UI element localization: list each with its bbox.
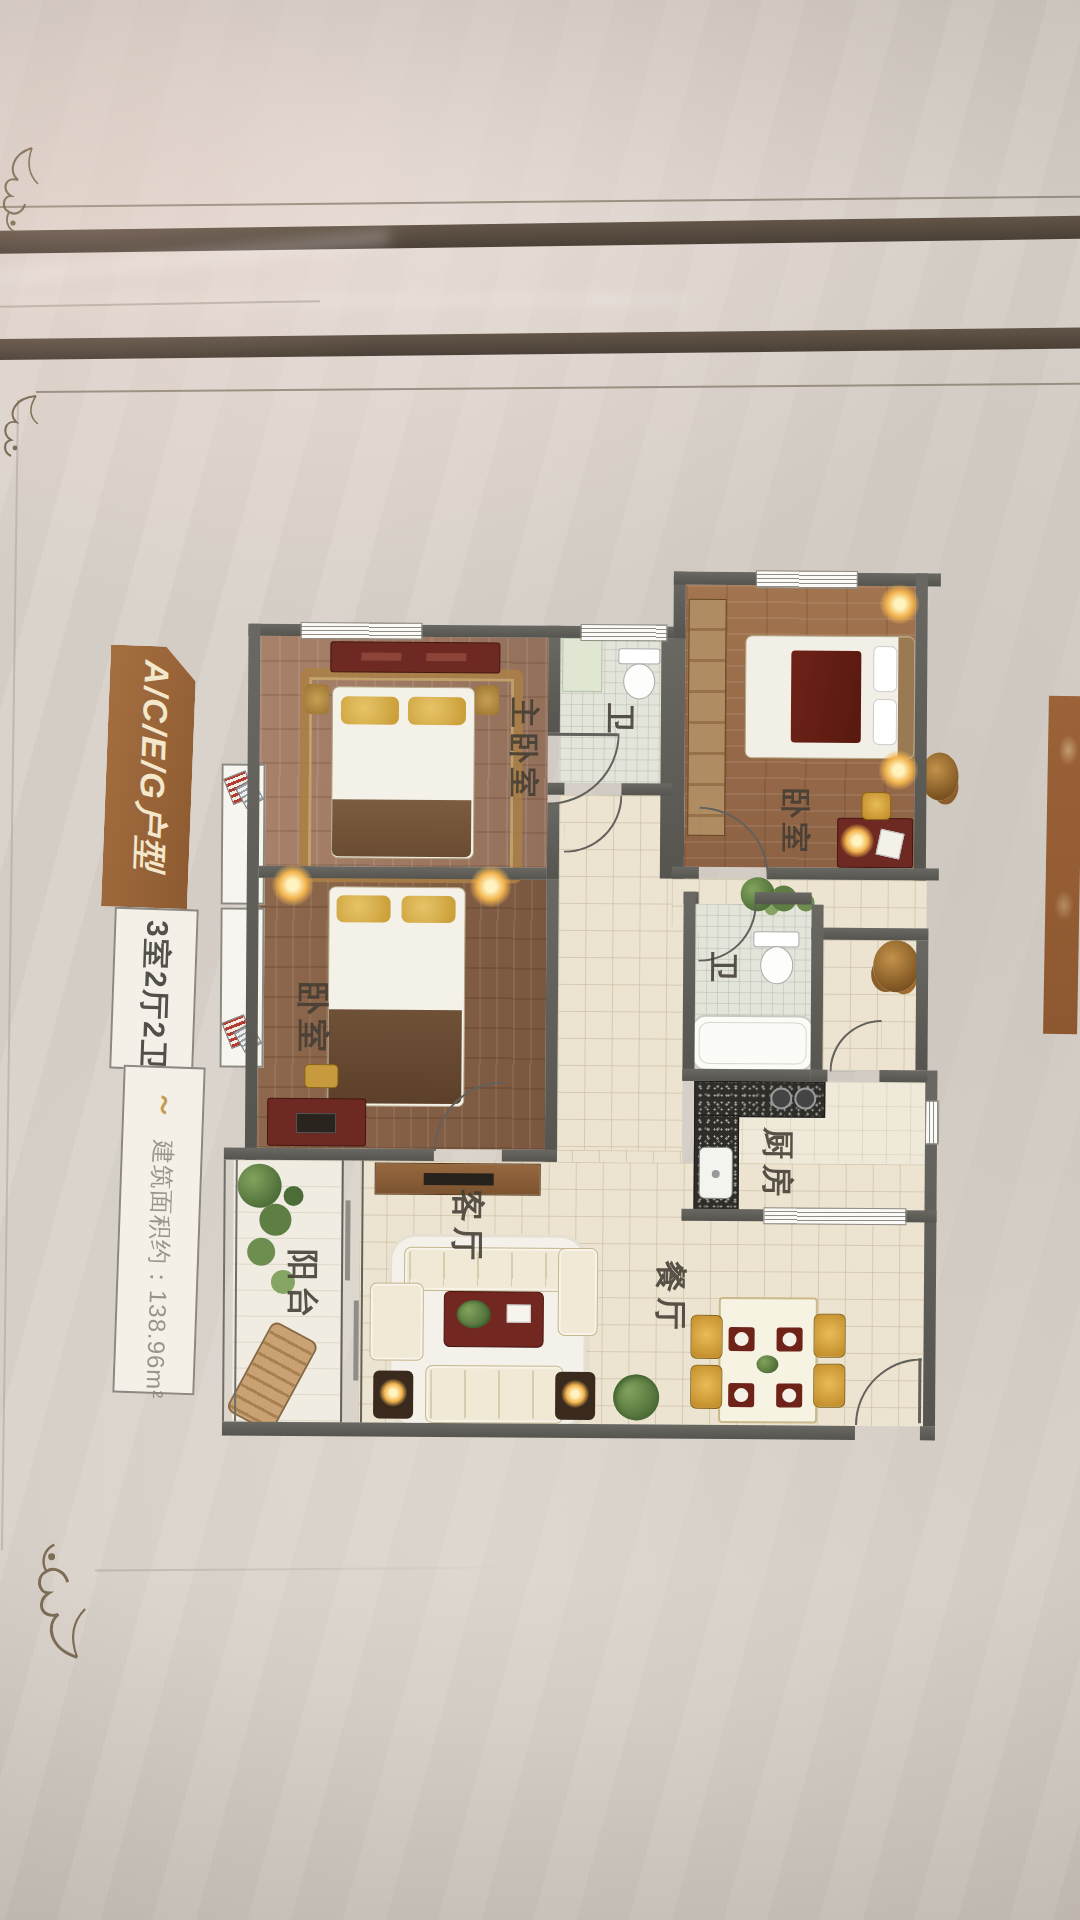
desk-paper (876, 829, 905, 860)
pillow (401, 896, 455, 923)
toilet-bowl (623, 663, 655, 699)
dining-chair (690, 1315, 722, 1359)
room-label-bedroom-right: 卧室 (780, 787, 810, 857)
wall (502, 1149, 557, 1161)
master-bed (331, 686, 475, 859)
toilet-tank (618, 648, 660, 664)
armchair (369, 1283, 424, 1361)
wall (660, 639, 686, 879)
dining-chair (813, 1314, 845, 1358)
bedroom-right-bed (745, 635, 916, 759)
tv (296, 1113, 336, 1133)
plate (782, 1388, 796, 1402)
frame-line-main-thin (36, 383, 1080, 393)
master-nightstand (475, 685, 499, 715)
dining-plant (613, 1374, 659, 1420)
area-label: 建筑面积约：138.96m² (142, 1140, 175, 1400)
wall (672, 867, 699, 879)
corner-flourish-icon (28, 1542, 94, 1660)
corner-flourish-icon (0, 146, 40, 234)
window (925, 1100, 939, 1144)
placemat (729, 1327, 755, 1351)
wall (682, 892, 695, 1081)
window (300, 622, 422, 640)
desk-lamp-glow (840, 824, 874, 858)
placemat (728, 1383, 754, 1407)
plate (783, 1332, 797, 1346)
frame-band-main-top (0, 327, 1080, 360)
wall (920, 1426, 935, 1440)
placemat (776, 1383, 802, 1407)
layout-label: 3室2厅2卫 (137, 920, 172, 1073)
table-tray (507, 1304, 531, 1322)
adjacent-poster-banner-fragment (1043, 696, 1080, 1035)
pillow (873, 646, 897, 692)
wall (755, 892, 812, 904)
sofa (425, 1365, 563, 1424)
dresser-drawer (426, 653, 466, 661)
hall-living-join-floor (545, 1150, 682, 1163)
corner-flourish-icon (0, 392, 38, 462)
bathtub (691, 1015, 813, 1072)
speaker-lamp-glow (379, 1379, 407, 1407)
sliding-door (340, 1160, 364, 1422)
pillow (341, 696, 399, 724)
stove-burner (794, 1087, 816, 1109)
sink-drain (712, 1170, 720, 1178)
wall (810, 1070, 827, 1082)
bedside-lamp-glow (272, 864, 314, 906)
shower-mat (562, 638, 602, 692)
bedroom-left-bed (327, 886, 466, 1107)
bathtub-inner (699, 1022, 807, 1065)
speaker-lamp-glow (561, 1380, 589, 1408)
plate (735, 1332, 749, 1346)
window (580, 624, 667, 642)
floor-speaker (373, 1371, 413, 1419)
pillow (336, 895, 390, 922)
room-label-kitchen: 厨房 (762, 1127, 795, 1201)
bedside-lamp-glow (470, 865, 512, 907)
headboard (898, 637, 915, 758)
plate (734, 1388, 748, 1402)
tv (424, 1173, 494, 1185)
pillow (408, 697, 466, 725)
gold-swoosh-icon: ～ (150, 1090, 181, 1126)
armchair (558, 1248, 599, 1336)
wardrobe (687, 599, 727, 836)
wall (222, 1421, 855, 1439)
table-flowers (457, 1300, 491, 1328)
wall (811, 928, 928, 941)
room-label-bath-top: 卫 (605, 703, 635, 738)
frame-band-upper (0, 216, 1080, 254)
door-leaf (918, 1358, 921, 1423)
room-label-balcony: 阳台 (287, 1249, 320, 1323)
wall (682, 1069, 810, 1082)
wall (904, 1210, 936, 1222)
wall (915, 940, 928, 1070)
pillow (873, 699, 897, 745)
toilet (618, 648, 658, 700)
sofa-cushions (430, 1370, 558, 1419)
bed-end-bench (304, 1064, 338, 1088)
room-label-living-room: 客厅 (451, 1189, 485, 1265)
wall (810, 905, 823, 1082)
photo-crease-highlight-2 (0, 296, 690, 304)
wall (879, 1070, 927, 1082)
unit-type-banner: A/C/E/G户型 (101, 644, 197, 909)
dresser-drawer (361, 652, 401, 660)
wall (914, 573, 928, 880)
layout-box: 3室2厅2卫 (109, 907, 199, 1072)
area-box: ～ 建筑面积约：138.96m² (112, 1065, 205, 1396)
toilet (753, 931, 797, 983)
room-label-bath-middle: 卫 (708, 952, 738, 987)
frame-line-upper-thin (0, 196, 1080, 208)
stove-burner (770, 1087, 792, 1109)
balcony-railing (222, 1159, 238, 1421)
coffee-table (444, 1291, 544, 1348)
dining-chair (690, 1365, 722, 1409)
photo-background: A/C/E/G户型 3室2厅2卫 ～ 建筑面积约：138.96m² (0, 0, 1080, 1920)
window (763, 1207, 906, 1225)
sofa-cushions (409, 1252, 571, 1287)
wall (681, 1209, 763, 1222)
window (756, 570, 858, 589)
desk-chair (861, 792, 891, 820)
bedroom-left-dresser (267, 1098, 366, 1147)
bed-blanket (332, 799, 471, 857)
wall (548, 638, 561, 733)
frame-line-bottom-faint (95, 1566, 525, 1571)
dining-table (718, 1297, 818, 1424)
entry-plant (873, 940, 919, 992)
sliding-door-panel (345, 1200, 351, 1280)
toilet-tank (753, 931, 799, 947)
bedside-lamp-glow (880, 584, 920, 624)
sliding-door-panel (353, 1300, 359, 1380)
sofa (404, 1247, 576, 1292)
table-centerpiece (756, 1355, 778, 1373)
master-dresser (330, 641, 500, 673)
unit-type-label: A/C/E/G户型 (132, 660, 174, 874)
master-nightstand (305, 684, 329, 714)
floorplan: 主卧室 卧室 卧室 卫 卫 厨房 客厅 餐厅 阳台 (210, 535, 956, 1450)
balcony-plants (237, 1164, 281, 1208)
toilet-bowl (760, 946, 793, 984)
floor-speaker (555, 1372, 595, 1420)
wall (767, 867, 939, 880)
wall (545, 880, 559, 1162)
wall (621, 783, 672, 795)
room-label-dining-room: 餐厅 (655, 1261, 688, 1335)
wall (547, 803, 560, 880)
room-label-bedroom-left: 卧室 (297, 981, 331, 1057)
dining-chair (813, 1364, 845, 1408)
bed-blanket (328, 1009, 462, 1104)
room-label-master-bedroom: 主卧室 (508, 697, 539, 802)
wall (224, 1147, 434, 1160)
frame-line-left (1, 400, 19, 1550)
kitchen-sink (699, 1147, 733, 1199)
bedside-lamp-glow (878, 750, 918, 790)
placemat (777, 1327, 803, 1351)
bed-blanket (791, 650, 862, 742)
